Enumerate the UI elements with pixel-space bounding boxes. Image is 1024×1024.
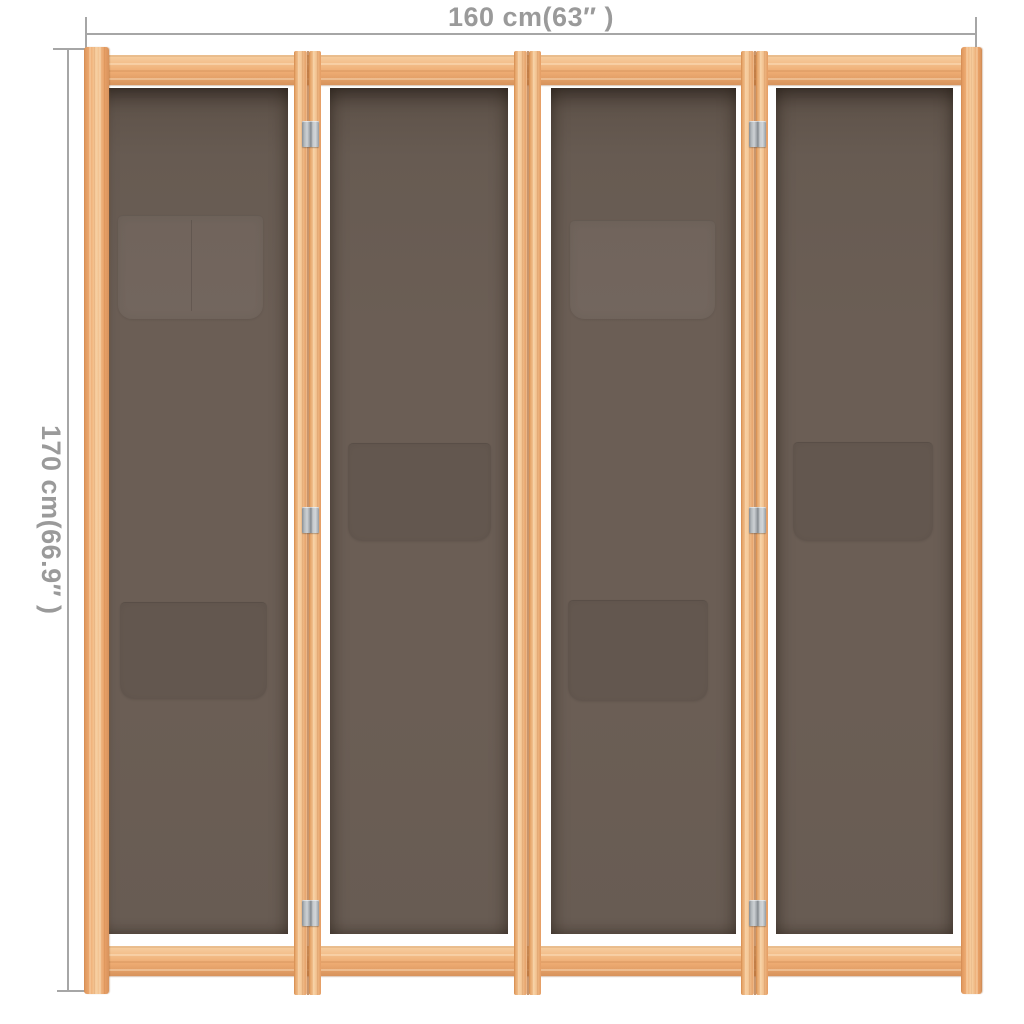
hinge-icon xyxy=(302,900,319,926)
height-dimension-tick-top xyxy=(53,48,86,50)
hinge-icon xyxy=(302,121,319,147)
width-dimension-tick-left xyxy=(85,17,87,51)
width-dimension-line xyxy=(86,33,976,35)
width-dimension-label: 160 cm(63″ ) xyxy=(86,2,976,33)
fabric-panel-4 xyxy=(776,88,953,934)
fabric-panel-3 xyxy=(551,88,736,934)
left-outer-wood-post xyxy=(84,47,109,994)
hinge-icon xyxy=(302,507,319,533)
junction-posts-panel2-3 xyxy=(514,51,541,995)
panel2-middle-pocket xyxy=(348,443,491,541)
height-dimension-label: 170 cm(66.9″ ) xyxy=(28,48,66,992)
right-outer-wood-post xyxy=(961,47,982,994)
product-image-scene: 160 cm(63″ ) 170 cm(66.9″ ) xyxy=(0,0,1024,1024)
hinge-icon xyxy=(749,900,766,926)
pocket-center-seam xyxy=(191,220,192,311)
hinge-icon xyxy=(749,507,766,533)
post-seam xyxy=(527,51,529,995)
panel4-middle-pocket xyxy=(793,442,933,541)
panel1-lower-pocket xyxy=(120,602,267,699)
wood-post-leaf xyxy=(514,51,527,995)
fabric-panel-2 xyxy=(330,88,508,934)
panel1-upper-double-pocket xyxy=(118,215,263,319)
panel3-upper-pocket xyxy=(570,220,715,319)
panel3-lower-pocket xyxy=(568,600,708,701)
fabric-panel-1 xyxy=(100,88,288,934)
hinge-icon xyxy=(749,121,766,147)
height-dimension-line xyxy=(67,48,69,992)
wood-post-leaf xyxy=(529,51,542,995)
width-dimension-tick-right xyxy=(975,17,977,51)
